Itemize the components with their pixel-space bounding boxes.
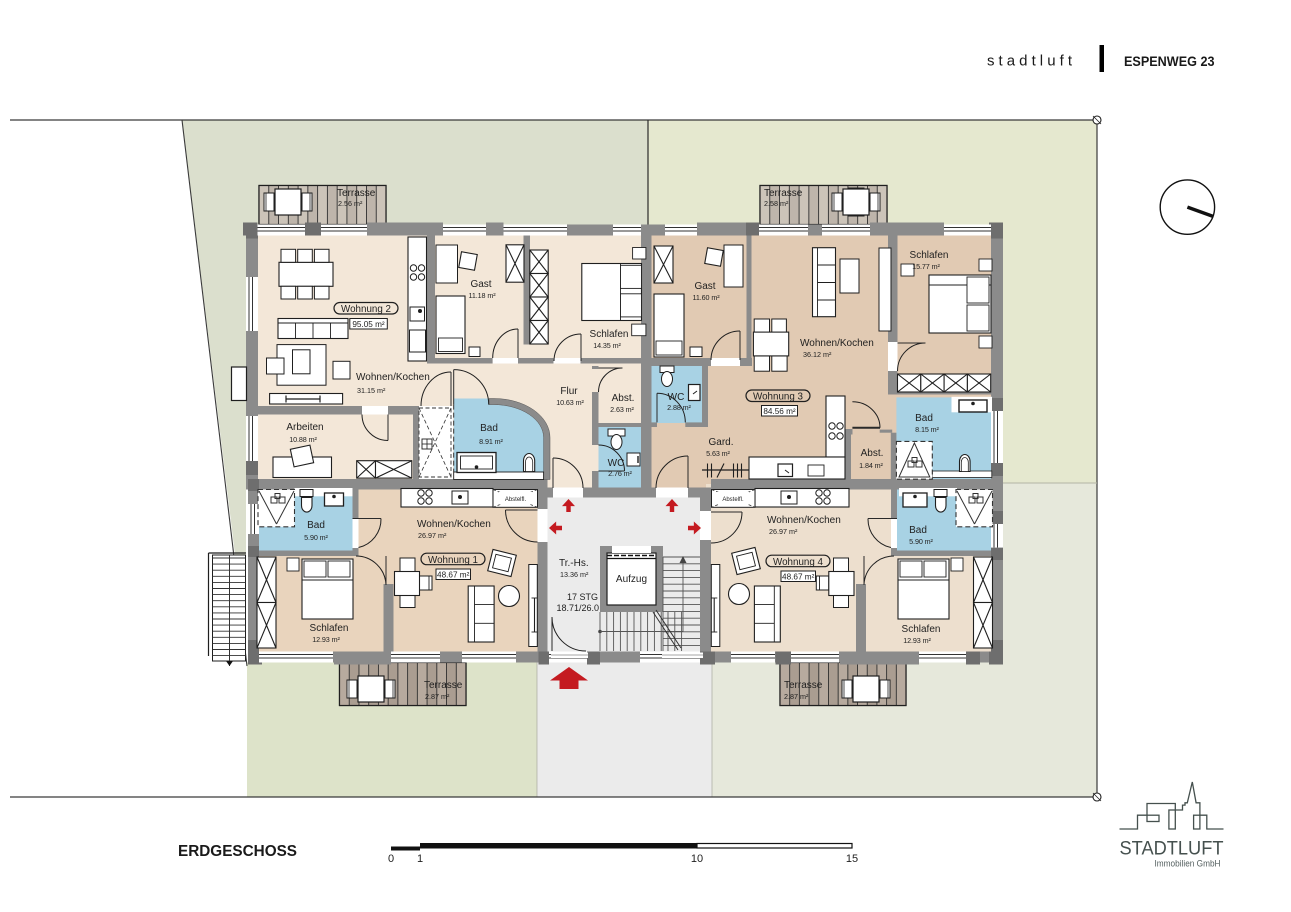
svg-text:Terrasse: Terrasse (337, 188, 376, 199)
svg-text:Wohnen/Kochen: Wohnen/Kochen (800, 338, 874, 349)
svg-text:5.63 m²: 5.63 m² (706, 449, 730, 458)
svg-text:ESPENWEG 23: ESPENWEG 23 (1124, 54, 1215, 69)
svg-text:2.58 m²: 2.58 m² (764, 199, 789, 208)
svg-text:10.63 m²: 10.63 m² (556, 398, 584, 407)
svg-text:Gard.: Gard. (708, 437, 733, 448)
svg-text:1: 1 (417, 853, 423, 865)
svg-text:Abst.: Abst. (612, 393, 635, 404)
svg-text:8.15 m²: 8.15 m² (915, 425, 939, 434)
svg-text:14.35 m²: 14.35 m² (593, 341, 621, 350)
svg-text:1.84 m²: 1.84 m² (859, 461, 883, 470)
svg-text:2.76 m²: 2.76 m² (608, 469, 632, 478)
svg-text:10.88 m²: 10.88 m² (289, 435, 317, 444)
svg-text:Gast: Gast (470, 279, 491, 290)
svg-text:Wohnung 2: Wohnung 2 (341, 304, 391, 315)
svg-text:Immobilien GmbH: Immobilien GmbH (1155, 859, 1221, 870)
svg-text:26.97 m²: 26.97 m² (769, 527, 798, 536)
svg-text:Wohnen/Kochen: Wohnen/Kochen (767, 515, 841, 526)
svg-text:Bad: Bad (307, 520, 325, 531)
svg-text:Schlafen: Schlafen (902, 624, 941, 635)
svg-text:Schlafen: Schlafen (590, 329, 629, 340)
svg-text:Terrasse: Terrasse (424, 680, 463, 691)
svg-text:15.77 m²: 15.77 m² (912, 262, 940, 271)
svg-text:48.67 m²: 48.67 m² (782, 573, 815, 582)
svg-text:Tr.-Hs.: Tr.-Hs. (559, 558, 589, 569)
svg-text:12.93 m²: 12.93 m² (903, 636, 931, 645)
svg-text:Terrasse: Terrasse (764, 188, 803, 199)
svg-text:WC: WC (608, 458, 625, 469)
svg-text:Abstelfl.: Abstelfl. (722, 497, 744, 503)
svg-text:12.93 m²: 12.93 m² (312, 635, 340, 644)
svg-text:stadtluft: stadtluft (987, 53, 1073, 70)
svg-text:5.90 m²: 5.90 m² (304, 533, 328, 542)
svg-text:Arbeiten: Arbeiten (286, 422, 323, 433)
svg-text:Abstelfl.: Abstelfl. (505, 497, 527, 503)
svg-text:84.56 m²: 84.56 m² (763, 407, 796, 416)
svg-text:ERDGESCHOSS: ERDGESCHOSS (178, 843, 297, 860)
svg-text:Wohnung 4: Wohnung 4 (773, 557, 823, 568)
svg-text:Abst.: Abst. (861, 448, 884, 459)
svg-text:2.56 m²: 2.56 m² (338, 199, 363, 208)
svg-text:Wohnung 3: Wohnung 3 (753, 392, 803, 403)
svg-text:31.15 m²: 31.15 m² (357, 386, 386, 395)
svg-text:Bad: Bad (909, 525, 927, 536)
svg-text:Bad: Bad (480, 423, 498, 434)
svg-text:Terrasse: Terrasse (784, 680, 823, 691)
svg-text:Schlafen: Schlafen (310, 623, 349, 634)
svg-text:Wohnen/Kochen: Wohnen/Kochen (356, 372, 430, 383)
svg-text:Wohnen/Kochen: Wohnen/Kochen (417, 519, 491, 530)
svg-text:Gast: Gast (694, 281, 715, 292)
svg-text:5.90 m²: 5.90 m² (909, 537, 933, 546)
svg-text:Flur: Flur (560, 386, 578, 397)
svg-text:15: 15 (846, 853, 858, 865)
svg-text:26.97 m²: 26.97 m² (418, 531, 447, 540)
svg-text:36.12 m²: 36.12 m² (803, 350, 832, 359)
svg-text:2.88 m²: 2.88 m² (667, 403, 691, 412)
svg-text:11.60 m²: 11.60 m² (692, 293, 720, 302)
svg-text:8.91 m²: 8.91 m² (479, 437, 503, 446)
svg-text:2.87 m²: 2.87 m² (784, 692, 809, 701)
svg-text:18.71/26.0: 18.71/26.0 (557, 603, 600, 613)
svg-text:48.67 m²: 48.67 m² (437, 571, 470, 580)
svg-text:11.18 m²: 11.18 m² (468, 291, 496, 300)
svg-text:2.63 m²: 2.63 m² (610, 405, 634, 414)
svg-text:Bad: Bad (915, 413, 933, 424)
svg-text:95.05 m²: 95.05 m² (352, 320, 385, 329)
svg-text:Schlafen: Schlafen (910, 250, 949, 261)
svg-text:2.87 m²: 2.87 m² (425, 692, 450, 701)
svg-text:Aufzug: Aufzug (616, 574, 647, 585)
svg-text:Wohnung 1: Wohnung 1 (428, 555, 478, 566)
svg-text:0: 0 (388, 853, 394, 865)
svg-text:WC: WC (668, 392, 685, 403)
svg-text:10: 10 (691, 853, 703, 865)
svg-text:STADTLUFT: STADTLUFT (1120, 839, 1224, 860)
svg-text:17 STG: 17 STG (567, 592, 598, 602)
svg-text:13.36 m²: 13.36 m² (560, 570, 589, 579)
